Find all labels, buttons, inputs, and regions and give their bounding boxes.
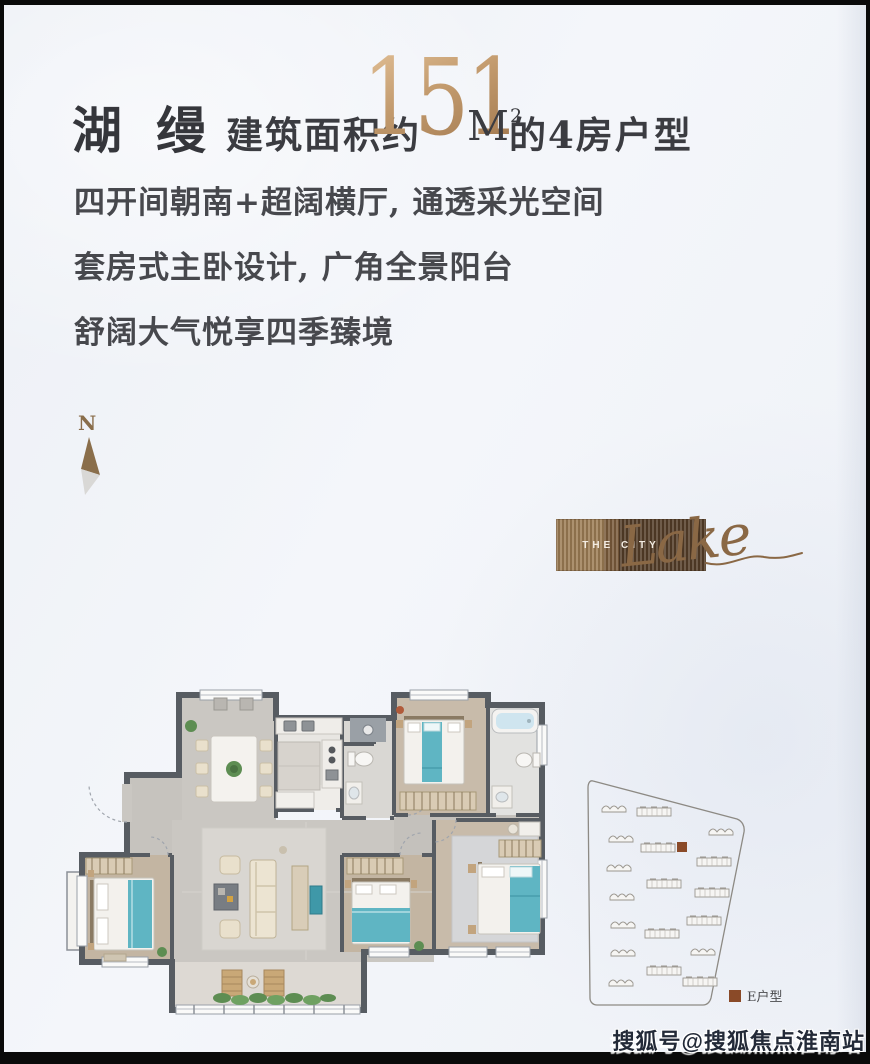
master-bedroom	[452, 822, 541, 942]
selling-point-2: 套房式主卧设计, 广角全景阳台	[74, 242, 514, 287]
project-logo: THE CITY Lake	[554, 503, 809, 593]
site-legend: E户型	[729, 989, 783, 1005]
living-room	[202, 828, 326, 950]
legend-swatch	[729, 990, 741, 1002]
floor-plan	[64, 680, 564, 1015]
page-canvas: 湖缦 建筑面积约 151 M2 的4房户型 四开间朝南+超阔横厅, 通透采光空间…	[4, 5, 866, 1052]
north-arrow-icon	[66, 435, 110, 499]
bedroom-2	[396, 706, 476, 810]
logo-flourish-stroke	[704, 543, 804, 573]
selling-point-1: 四开间朝南+超阔横厅, 通透采光空间	[74, 177, 605, 222]
page: 湖缦 建筑面积约 151 M2 的4房户型 四开间朝南+超阔横厅, 通透采光空间…	[0, 0, 870, 1064]
unit-location-marker	[677, 842, 687, 852]
area-unit-base: M	[467, 102, 509, 150]
site-plan: E户型	[579, 768, 814, 1023]
brand-title: 湖缦	[72, 91, 240, 163]
site-buildings	[602, 806, 733, 986]
watermark-text: 搜狐号@搜狐焦点淮南站	[613, 1024, 865, 1056]
selling-point-3: 舒阔大气悦享四季臻境	[74, 307, 394, 352]
legend-label: E户型	[747, 989, 783, 1005]
area-suffix-text: 的4房户型	[509, 105, 693, 159]
north-label: N	[78, 411, 96, 435]
